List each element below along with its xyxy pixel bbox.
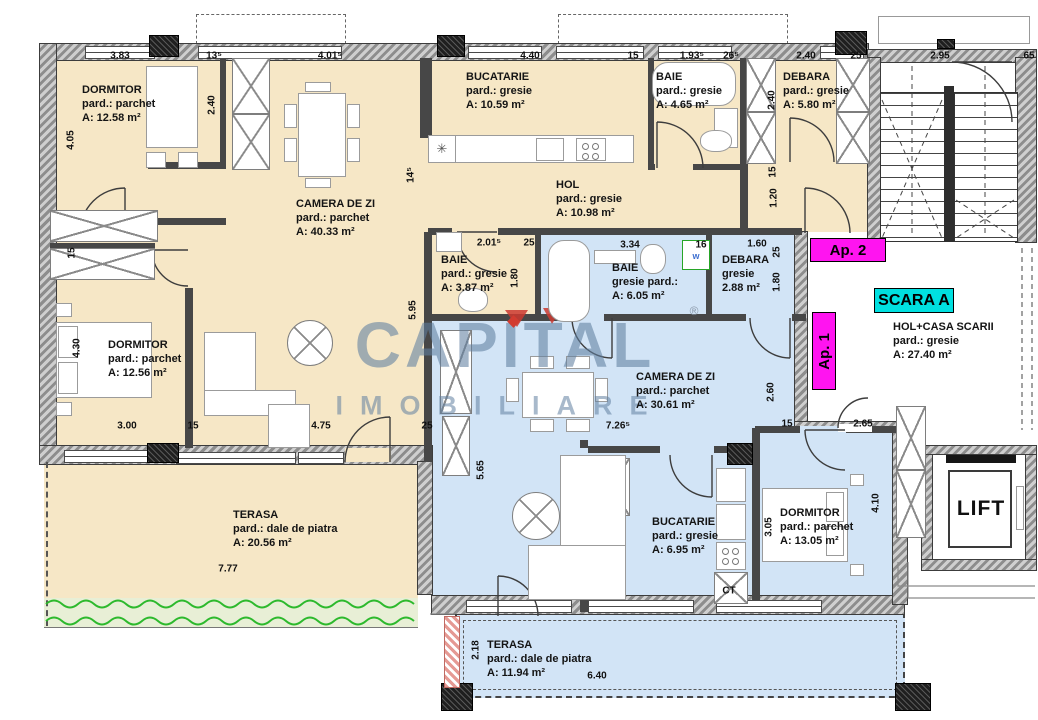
room-label-line: CAMERA DE ZI [636,370,715,384]
room-label-baie-605: BAIEgresie pard.:A: 6.05 m² [612,261,678,303]
dimension-label: 3.34 [620,240,639,251]
dimension-label: 1.93⁵ [680,51,704,62]
room-label-line: pard.: gresie [656,84,722,98]
dimension-label: 13⁵ [206,51,222,62]
dining-table [522,372,594,418]
burner [732,558,739,565]
room-label-line: pard.: gresie [783,84,849,98]
dimension-label: 15 [781,419,792,430]
room-label-terasa-1194: TERASApard.: dale de piatraA: 11.94 m² [487,638,592,680]
dimension-label: 25 [421,421,432,432]
room-label-line: 2.88 m² [722,281,769,295]
dimension-label: 2.95 [930,51,949,62]
closet [746,112,776,164]
room-label-camera-de-zi-4033: CAMERA DE ZIpard.: parchetA: 40.33 m² [296,197,375,239]
stove [576,138,606,161]
nightstand [56,303,72,317]
washbasin [436,232,462,252]
room-label-line: A: 20.56 m² [233,536,338,550]
room-label-line: A: 30.61 m² [636,398,715,412]
dimension-label: 4.01⁵ [318,51,342,62]
closet [50,210,158,242]
room-label-line: BUCATARIE [466,70,532,84]
room-label-dormitor-3: DORMITORpard.: parchetA: 13.05 m² [780,506,853,548]
dimension-label: 7.26⁵ [606,421,630,432]
room-label-line: BAIE [656,70,722,84]
dimension-label: 2.40 [767,90,778,109]
room-label-line: pard.: gresie [466,84,532,98]
stove [716,542,746,570]
dimension-label: 1.20 [769,188,780,207]
nightstand [146,152,166,168]
room-label-line: HOL+CASA SCARII [893,320,994,334]
room-label-line: pard.: parchet [82,97,155,111]
room-label-debara-580: DEBARApard.: gresieA: 5.80 m² [783,70,849,112]
kitchen-sink [716,504,746,540]
room-label-bucatarie-2: BUCATARIEpard.: gresieA: 6.95 m² [652,515,718,557]
room-label-line: pard.: dale de piatra [233,522,338,536]
room-label-line: A: 40.33 m² [296,225,375,239]
room-label-baie-465: BAIEpard.: gresieA: 4.65 m² [656,70,722,112]
toilet [700,130,732,152]
dimension-label: 5.65 [476,460,487,479]
nightstand [850,564,864,576]
dimension-label: 2.65 [853,419,872,430]
room-label-line: A: 12.58 m² [82,111,155,125]
room-label-line: pard.: parchet [108,352,181,366]
room-label-line: DEBARA [783,70,849,84]
room-label-line: pard.: gresie [893,334,994,348]
floor-plan: ww✳ CAPITAL IMOBILIARE DORMITORpard.: pa… [0,0,1038,720]
closet [836,112,870,164]
dimension-label: 2.60 [766,382,777,401]
dimension-label: 25 [523,238,534,249]
apartment2-tag-label: Ap. 2 [830,242,867,259]
dimension-label: 4.10 [871,493,882,512]
burner [592,153,599,160]
room-label-line: A: 5.80 m² [783,98,849,112]
closet [440,330,472,414]
dimension-label: 2.01⁵ [477,238,501,249]
room-label-line: pard.: parchet [780,520,853,534]
room-label-line: DEBARA [722,253,769,267]
burner [582,153,589,160]
sofa [560,455,626,547]
chair [347,138,360,162]
dimension-label: 1.80 [772,272,783,291]
burner [722,558,729,565]
dimension-label: 2.40 [796,51,815,62]
room-label-line: DORMITOR [82,83,155,97]
dimension-label: 4.30 [72,338,83,357]
dimension-label: 1.80 [510,268,521,287]
burner [722,548,729,555]
room-label-line: BAIE [441,253,507,267]
round-table [287,320,333,366]
dimension-label: 3.05 [764,517,775,536]
sofa [204,332,256,396]
room-label-line: pard.: gresie [441,267,507,281]
dimension-label: 6.40 [587,671,606,682]
room-label-baie-387: BAIEpard.: gresieA: 3.87 m² [441,253,507,295]
apartment1-tag-label: Ap. 1 [816,333,833,370]
closet [232,58,270,114]
room-label-line: pard.: parchet [636,384,715,398]
room-label-line: A: 6.95 m² [652,543,718,557]
bathtub [548,240,590,322]
burner [732,548,739,555]
room-label-line: BAIE [612,261,678,275]
nightstand [850,474,864,486]
room-label-line: BUCATARIE [652,515,718,529]
room-label-terasa-2056: TERASApard.: dale de piatraA: 20.56 m² [233,508,338,550]
chair [530,419,554,432]
room-label-line: A: 4.65 m² [656,98,722,112]
apartment2-tag: Ap. 2 [810,238,886,262]
room-label-dormitor-2: DORMITORpard.: parchetA: 12.56 m² [108,338,181,380]
dimension-label: 3.00 [117,421,136,432]
chair [595,378,608,402]
armchair [268,404,310,448]
chair [284,138,297,162]
room-label-debara-288: DEBARAgresie2.88 m² [722,253,769,295]
room-label-line: pard.: gresie [652,529,718,543]
dimension-label: 3.83 [110,51,129,62]
dimension-label: 15 [768,166,779,177]
room-label-line: DORMITOR [108,338,181,352]
dimension-label: 2.18 [471,640,482,659]
chair [305,178,331,188]
room-label-camera-de-zi-3061: CAMERA DE ZIpard.: parchetA: 30.61 m² [636,370,715,412]
dimension-label: 1.60 [747,239,766,250]
dimension-label: 5.95 [408,300,419,319]
nightstand [56,402,72,416]
dimension-label: 65 [1023,51,1034,62]
nightstand [178,152,198,168]
dimension-label: 25 [850,51,861,62]
room-label-hol: HOLpard.: gresieA: 10.98 m² [556,178,622,220]
dimension-label: 4.75 [311,421,330,432]
room-label-line: TERASA [487,638,592,652]
room-label-line: A: 3.87 m² [441,281,507,295]
pillow [58,362,78,394]
dimension-label: 15 [627,51,638,62]
room-label-line: HOL [556,178,622,192]
closet [896,406,926,470]
room-label-line: A: 12.56 m² [108,366,181,380]
appliance-box: ✳ [428,135,456,163]
lift-label: LIFT [957,497,1005,521]
room-label-line: DORMITOR [780,506,853,520]
dimension-label: 14⁵ [406,167,417,183]
chair [530,356,554,369]
appliance [716,468,746,502]
chair [566,356,590,369]
stairwell-tag-label: SCARA A [878,292,950,310]
room-label-bucatarie-1: BUCATARIEpard.: gresieA: 10.59 m² [466,70,532,112]
burner [592,143,599,150]
chair [305,82,331,92]
room-label-line: CAMERA DE ZI [296,197,375,211]
room-label-line: gresie [722,267,769,281]
dimension-label: 7.77 [218,564,237,575]
round-table [512,492,560,540]
registered-symbol: ® [690,304,699,318]
room-label-line: A: 13.05 m² [780,534,853,548]
sink [536,138,564,161]
dimension-label: 26⁵ [723,51,739,62]
chair [347,104,360,128]
chair [284,104,297,128]
room-label-line: A: 11.94 m² [487,666,592,680]
boiler-label: CT [722,586,735,597]
closet [442,416,470,476]
dimension-label: 15 [187,421,198,432]
dimension-label: 25 [772,246,783,257]
room-label-line: gresie pard.: [612,275,678,289]
dimension-label: 4.40 [520,51,539,62]
room-label-hol-casa-scarii: HOL+CASA SCARIIpard.: gresieA: 27.40 m² [893,320,994,362]
room-label-line: A: 10.59 m² [466,98,532,112]
apartment1-tag: Ap. 1 [812,312,836,390]
room-label-line: A: 6.05 m² [612,289,678,303]
dimension-label: 2.40 [207,95,218,114]
dimension-label: 16 [695,240,706,251]
room-label-line: pard.: gresie [556,192,622,206]
burner [582,143,589,150]
closet [232,114,270,170]
dimension-label: 4.05 [66,130,77,149]
room-label-line: pard.: parchet [296,211,375,225]
dimension-label: 15 [67,247,78,258]
sofa [528,545,626,600]
stairwell-tag: SCARA A [874,288,954,313]
room-label-line: A: 27.40 m² [893,348,994,362]
room-label-line: pard.: dale de piatra [487,652,592,666]
dining-table [298,93,346,177]
room-label-line: TERASA [233,508,338,522]
chair [506,378,519,402]
closet [896,470,926,538]
room-label-dormitor-1: DORMITORpard.: parchetA: 12.58 m² [82,83,155,125]
room-label-line: A: 10.98 m² [556,206,622,220]
chair [566,419,590,432]
